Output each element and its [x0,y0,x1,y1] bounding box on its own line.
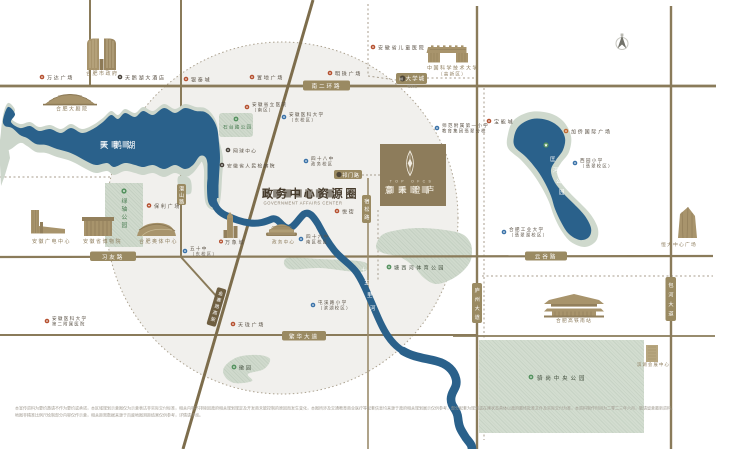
svg-text:加侨国际广场: 加侨国际广场 [571,129,612,136]
svg-text:中国科学技术大学: 中国科学技术大学 [427,65,479,72]
svg-text:（东校区）: （东校区） [289,117,317,124]
svg-text:天鹅湖: 天鹅湖 [100,140,140,150]
svg-text:万达广场: 万达广场 [47,75,74,82]
svg-text:M: M [399,77,403,82]
svg-text:（滨湖校区）: （滨湖校区） [318,305,352,312]
svg-text:安徽广电中心: 安徽广电中心 [32,238,71,245]
svg-text:祁门路: 祁门路 [342,172,359,179]
svg-text:地图非精准比例尺绘制部分内容仅作示意，相关距离数据来源于百度: 地图非精准比例尺绘制部分内容仅作示意，相关距离数据来源于百度地图测距结果仅供参考… [15,412,203,418]
svg-text:（高新区）: （高新区） [438,71,467,78]
svg-text:本宣传资料为要约邀请不作为要约或承诺，本区域规划示意图仅为示: 本宣传资料为要约邀请不作为要约或承诺，本区域规划示意图仅为示意表达非实际交付标准… [15,405,675,411]
svg-text:（南区）: （南区） [252,107,274,113]
svg-text:恒大中心广场: 恒大中心广场 [661,241,697,248]
svg-text:网球中心: 网球中心 [233,147,257,154]
svg-text:TOP OFCS: TOP OFCS [390,180,434,184]
svg-text:政务校区: 政务校区 [311,161,333,168]
svg-text:保利广场: 保利广场 [154,203,181,210]
svg-text:天鹅湖大酒店: 天鹅湖大酒店 [125,75,166,82]
svg-text:南二环路: 南二环路 [312,82,342,90]
svg-text:政务中心: 政务中心 [272,239,295,246]
svg-text:教育集团翡翠分校: 教育集团翡翠分校 [442,128,487,135]
svg-text:万象城: 万象城 [225,239,245,246]
svg-text:地铁站: 地铁站 [407,84,418,89]
svg-text:大学城: 大学城 [406,75,426,83]
svg-text:天珑广场: 天珑广场 [238,322,265,329]
svg-text:（翡翠校区）: （翡翠校区） [580,163,614,170]
svg-text:徽园: 徽园 [239,365,253,372]
svg-text:置地广场: 置地广场 [257,75,284,82]
svg-text:骆岗中央公园: 骆岗中央公园 [537,374,587,382]
svg-text:（东校区）: （东校区） [190,251,218,258]
svg-text:合肥高铁南站: 合肥高铁南站 [556,317,592,324]
svg-text:银泰城: 银泰城 [191,77,211,84]
svg-text:第二附属医院: 第二附属医院 [52,321,86,328]
svg-text:繁华大道: 繁华大道 [289,333,319,341]
svg-text:南区校区: 南区校区 [306,239,328,246]
svg-text:潜山路: 潜山路 [179,186,184,206]
svg-text:明珠广场: 明珠广场 [335,71,362,78]
svg-text:安徽省人民检察院: 安徽省人民检察院 [227,162,276,169]
svg-text:安徽省博物院: 安徽省博物院 [83,238,122,245]
svg-text:安徽省儿童医院: 安徽省儿童医院 [378,45,426,52]
svg-text:滨湖会展中心: 滨湖会展中心 [637,361,670,368]
svg-text:合肥大剧院: 合肥大剧院 [56,106,89,113]
svg-text:塘西河体育公园: 塘西河体育公园 [394,265,446,272]
svg-text:政务中心资源圈: 政务中心资源圈 [262,187,359,201]
svg-text:宝能城: 宝能城 [494,119,514,126]
svg-text:GOVERNMENT AFFAIRS CENTER: GOVERNMENT AFFAIRS CENTER [264,201,343,206]
svg-text:合肥奥体中心: 合肥奥体中心 [139,238,178,245]
svg-text:（翡翠湖校区）: （翡翠湖校区） [509,232,548,239]
svg-text:悦街: 悦街 [342,209,356,216]
svg-text:意禾澄庐: 意禾澄庐 [385,185,440,195]
svg-text:宿松路: 宿松路 [364,197,370,221]
svg-text:合肥市政府: 合肥市政府 [86,70,119,77]
svg-text:云谷路: 云谷路 [535,253,557,261]
svg-text:习友路: 习友路 [102,253,124,261]
svg-text:石台路公园: 石台路公园 [223,124,252,131]
